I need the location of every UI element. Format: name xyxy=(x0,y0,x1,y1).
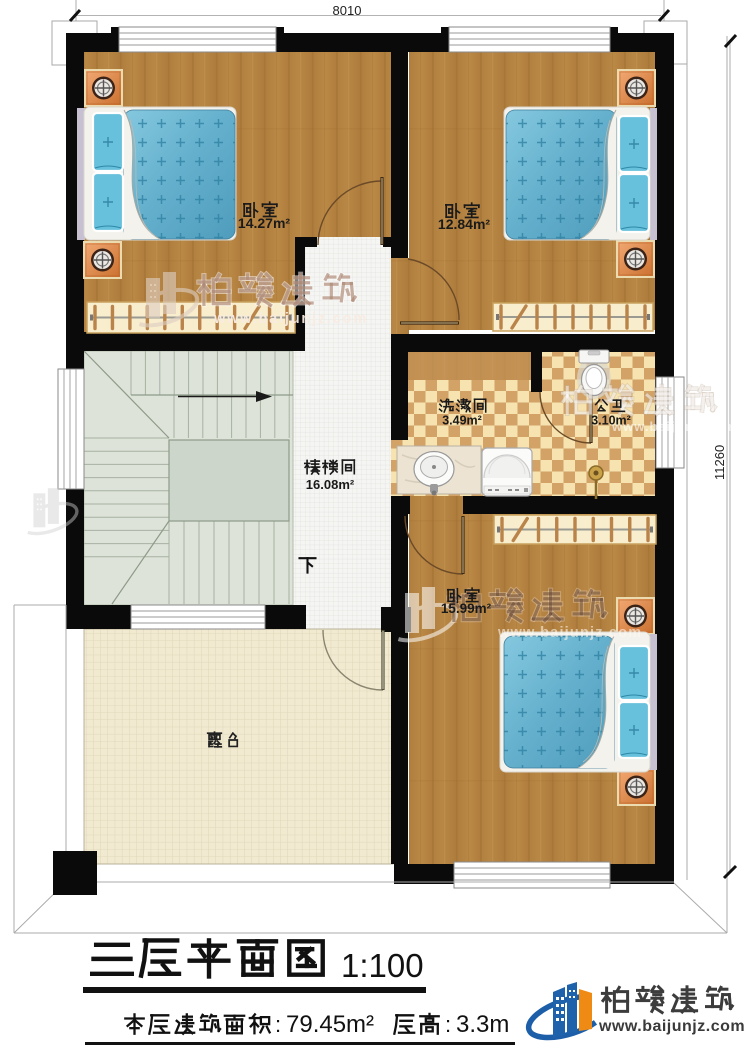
svg-text:www.baijunjz.com: www.baijunjz.com xyxy=(598,1018,745,1035)
svg-text:15.99m²: 15.99m² xyxy=(441,601,492,616)
svg-text:79.45m²: 79.45m² xyxy=(286,1011,374,1038)
svg-text:8010: 8010 xyxy=(333,3,362,18)
svg-text:12.84m²: 12.84m² xyxy=(438,216,490,232)
svg-text:3.49m²: 3.49m² xyxy=(442,414,482,428)
svg-text::: : xyxy=(275,1012,281,1037)
svg-text:3.3m: 3.3m xyxy=(456,1011,509,1038)
svg-text:3.10m²: 3.10m² xyxy=(591,414,631,428)
svg-text:1:100: 1:100 xyxy=(341,947,424,984)
svg-text:www.baijunjz.com: www.baijunjz.com xyxy=(213,311,368,327)
svg-text:www.baijunjz.com: www.baijunjz.com xyxy=(497,625,642,641)
svg-text::: : xyxy=(445,1012,451,1037)
svg-text:14.27m²: 14.27m² xyxy=(238,215,290,231)
svg-text:16.08m²: 16.08m² xyxy=(306,477,355,492)
svg-text:11260: 11260 xyxy=(712,445,727,480)
